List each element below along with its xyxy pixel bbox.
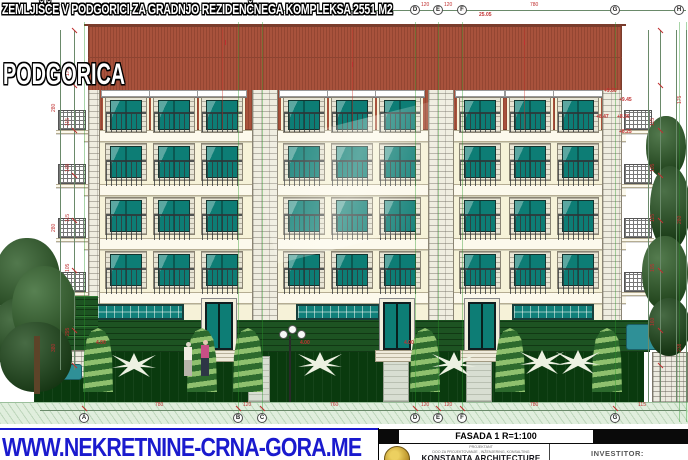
elevation-mark: +8.25: [619, 130, 641, 136]
balcony-railing: [558, 160, 598, 186]
bottom-bar: WWW.NEKRETNINE-CRNA-GORA.ME FASADA 1 R=1…: [0, 428, 688, 460]
roof-red-mark: [524, 40, 525, 45]
balcony-railing: [106, 160, 146, 186]
person-body: [201, 345, 209, 358]
dim-line: [40, 410, 686, 411]
balcony-railing: [154, 214, 194, 240]
balcony-railing: [154, 160, 194, 186]
red-centerline: [352, 28, 353, 130]
grid-bubble: H: [674, 5, 684, 15]
red-centerline: [222, 28, 223, 130]
grid-bubble: A: [79, 413, 89, 423]
dim-label: 115: [66, 102, 72, 126]
titleblock-header: FASADA 1 R=1:100: [379, 429, 688, 444]
grid-line: [262, 22, 263, 422]
tree-trunk: [34, 336, 40, 394]
dim-label: 780: [530, 3, 550, 9]
person-body: [184, 347, 192, 360]
dim-line: [686, 30, 687, 402]
window-cornice: [375, 90, 425, 97]
balcony-railing: [154, 112, 194, 132]
balcony-railing: [106, 112, 146, 132]
elevation-mark: +9.45: [619, 98, 641, 104]
dim-label: 115: [638, 403, 658, 409]
dim-label: 120: [444, 403, 464, 409]
grid-bubble: C: [257, 413, 267, 423]
roof-red-mark: [225, 40, 226, 45]
window-cornice: [505, 90, 555, 97]
dim-label: 120: [243, 403, 263, 409]
balcony-railing: [558, 112, 598, 132]
balcony-railing: [510, 112, 550, 132]
balcony-railing: [154, 268, 194, 294]
balcony-railing: [460, 112, 500, 132]
balcony-railing: [106, 214, 146, 240]
dim-label: 160: [651, 302, 657, 326]
dim-label: 280: [678, 200, 684, 224]
hedge-rows: [34, 320, 650, 352]
person-legs: [184, 360, 192, 376]
grid-line: [462, 22, 463, 422]
balcony-railing: [510, 268, 550, 294]
lamp-globe: [297, 330, 306, 339]
firm-info: PROJEKTANT DOO ZA PROJEKTOVANJE , INŽENJ…: [415, 445, 547, 460]
window-cornice: [279, 90, 329, 97]
roof-top-edge: [84, 24, 626, 26]
balcony-railing: [106, 268, 146, 294]
window-cornice: [149, 90, 199, 97]
dim-label: 105: [651, 248, 657, 272]
ribbon-window: [296, 304, 380, 320]
entrance-door: [468, 302, 496, 350]
investor-label: INVESTITOR:: [591, 449, 644, 458]
dim-label: 105: [651, 148, 657, 172]
dim-label: 760: [330, 403, 350, 409]
dim-label: 780: [155, 403, 175, 409]
balcony-slab: [622, 238, 654, 242]
ribbon-window: [512, 304, 594, 320]
grid-line: [438, 22, 439, 422]
elevation-mark: 4.00: [96, 341, 118, 347]
roof-red-mark: [352, 62, 353, 67]
divider-line: [0, 428, 379, 430]
elevation-mark: 25.05: [479, 13, 501, 19]
city-watermark: PODGORICA: [3, 58, 125, 92]
balcony-railing: [202, 268, 242, 294]
listing-image: DEFGHABCDEFG1201207807801207601201207801…: [0, 0, 688, 460]
balcony-railing: [460, 214, 500, 240]
balcony-railing: [558, 268, 598, 294]
ribbon-window: [96, 304, 184, 320]
website-watermark: WWW.NEKRETNINE-CRNA-GORA.ME: [2, 432, 361, 460]
dim-label: 280: [52, 208, 58, 232]
dim-label: 105: [66, 248, 72, 272]
balcony-railing: [202, 160, 242, 186]
grid-bubble: F: [457, 413, 467, 423]
balcony-railing: [332, 268, 372, 294]
listing-headline: ZEMLJIŠČE V PODGORICI ZA GRADNJO REZIDEN…: [2, 1, 393, 18]
elevation-mark: +8.47: [596, 115, 618, 121]
balcony-railing: [558, 214, 598, 240]
elevation-mark: +9.60: [604, 89, 626, 95]
dim-label: 238: [678, 328, 684, 352]
lamp-globe: [279, 330, 288, 339]
grid-bubble: D: [410, 5, 420, 15]
dim-label: 780: [530, 403, 550, 409]
konstanta-seal-logo: [384, 446, 410, 460]
grid-bubble: D: [410, 413, 420, 423]
dim-label: 115: [651, 102, 657, 126]
grid-bubble: G: [610, 413, 620, 423]
grid-line: [415, 22, 416, 422]
grid-bubble: B: [233, 413, 243, 423]
dim-label: 115: [66, 198, 72, 222]
window-cornice: [553, 90, 603, 97]
balcony-railing: [510, 214, 550, 240]
grid-line: [238, 22, 239, 422]
balcony-railing: [510, 160, 550, 186]
firm-name: KONSTANTA ARCHITECTURE: [418, 454, 543, 460]
dim-label: 380: [52, 328, 58, 352]
titleblock-body: PROJEKTANT DOO ZA PROJEKTOVANJE , INŽENJ…: [379, 444, 688, 460]
elevation-mark: 4.00: [404, 341, 426, 347]
garden-path: [466, 356, 492, 402]
dim-label: 105: [66, 148, 72, 172]
balcony-slab: [622, 184, 654, 188]
drawing-titleblock: FASADA 1 R=1:100 PROJEKTANT DOO ZA PROJE…: [378, 428, 688, 460]
drawing-title: FASADA 1 R=1:100: [399, 430, 593, 443]
balcony-railing: [202, 214, 242, 240]
person-legs: [201, 358, 209, 376]
elevation-mark: +8.36: [617, 115, 639, 121]
lamp-globe: [288, 325, 297, 334]
dim-label: 175: [678, 80, 684, 104]
balcony-railing: [284, 268, 324, 294]
dim-label: 295: [66, 312, 72, 336]
roof-ridge-line: [88, 57, 622, 58]
dim-label: 120: [421, 403, 441, 409]
grid-bubble: G: [610, 5, 620, 15]
titleblock-divider: [549, 444, 550, 460]
lamp-post: [289, 336, 291, 402]
dim-label: 120: [444, 3, 464, 9]
grid-line: [615, 22, 616, 422]
elevation-mark: 4.00: [300, 341, 322, 347]
dim-label: 120: [421, 3, 441, 9]
grid-bubble: E: [433, 413, 443, 423]
dim-label: 115: [651, 198, 657, 222]
garden-path: [383, 356, 409, 402]
dim-line: [648, 30, 649, 402]
balcony-railing: [460, 268, 500, 294]
balcony-railing: [380, 268, 420, 294]
side-balcony: [58, 218, 86, 238]
